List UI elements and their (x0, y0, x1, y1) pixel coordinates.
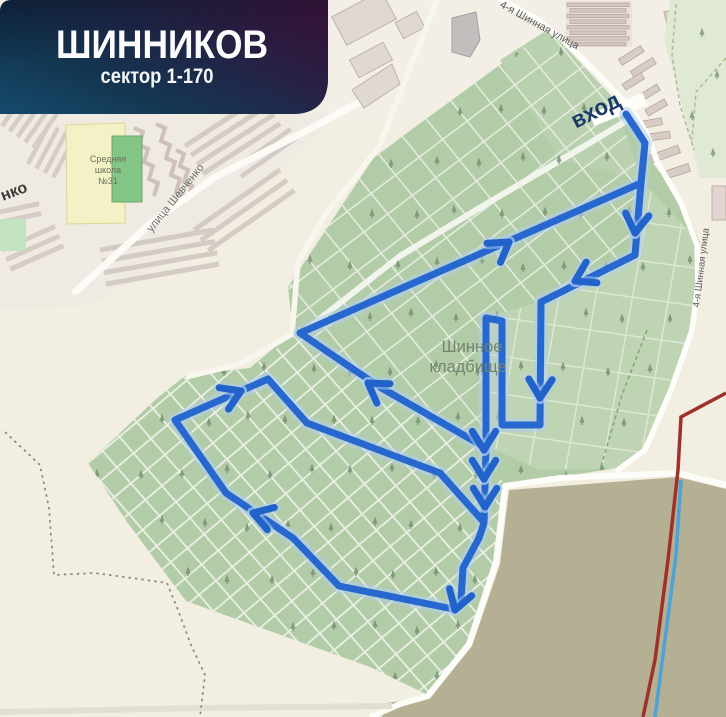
svg-text:кладбище: кладбище (429, 358, 506, 376)
svg-text:Шинное: Шинное (442, 338, 503, 356)
svg-text:№31: №31 (98, 176, 118, 186)
svg-text:школа: школа (95, 165, 121, 175)
svg-text:сектор 1-170: сектор 1-170 (101, 65, 214, 88)
svg-text:Средняя: Средняя (90, 154, 126, 164)
svg-text:ШИННИКОВ: ШИННИКОВ (56, 23, 268, 67)
